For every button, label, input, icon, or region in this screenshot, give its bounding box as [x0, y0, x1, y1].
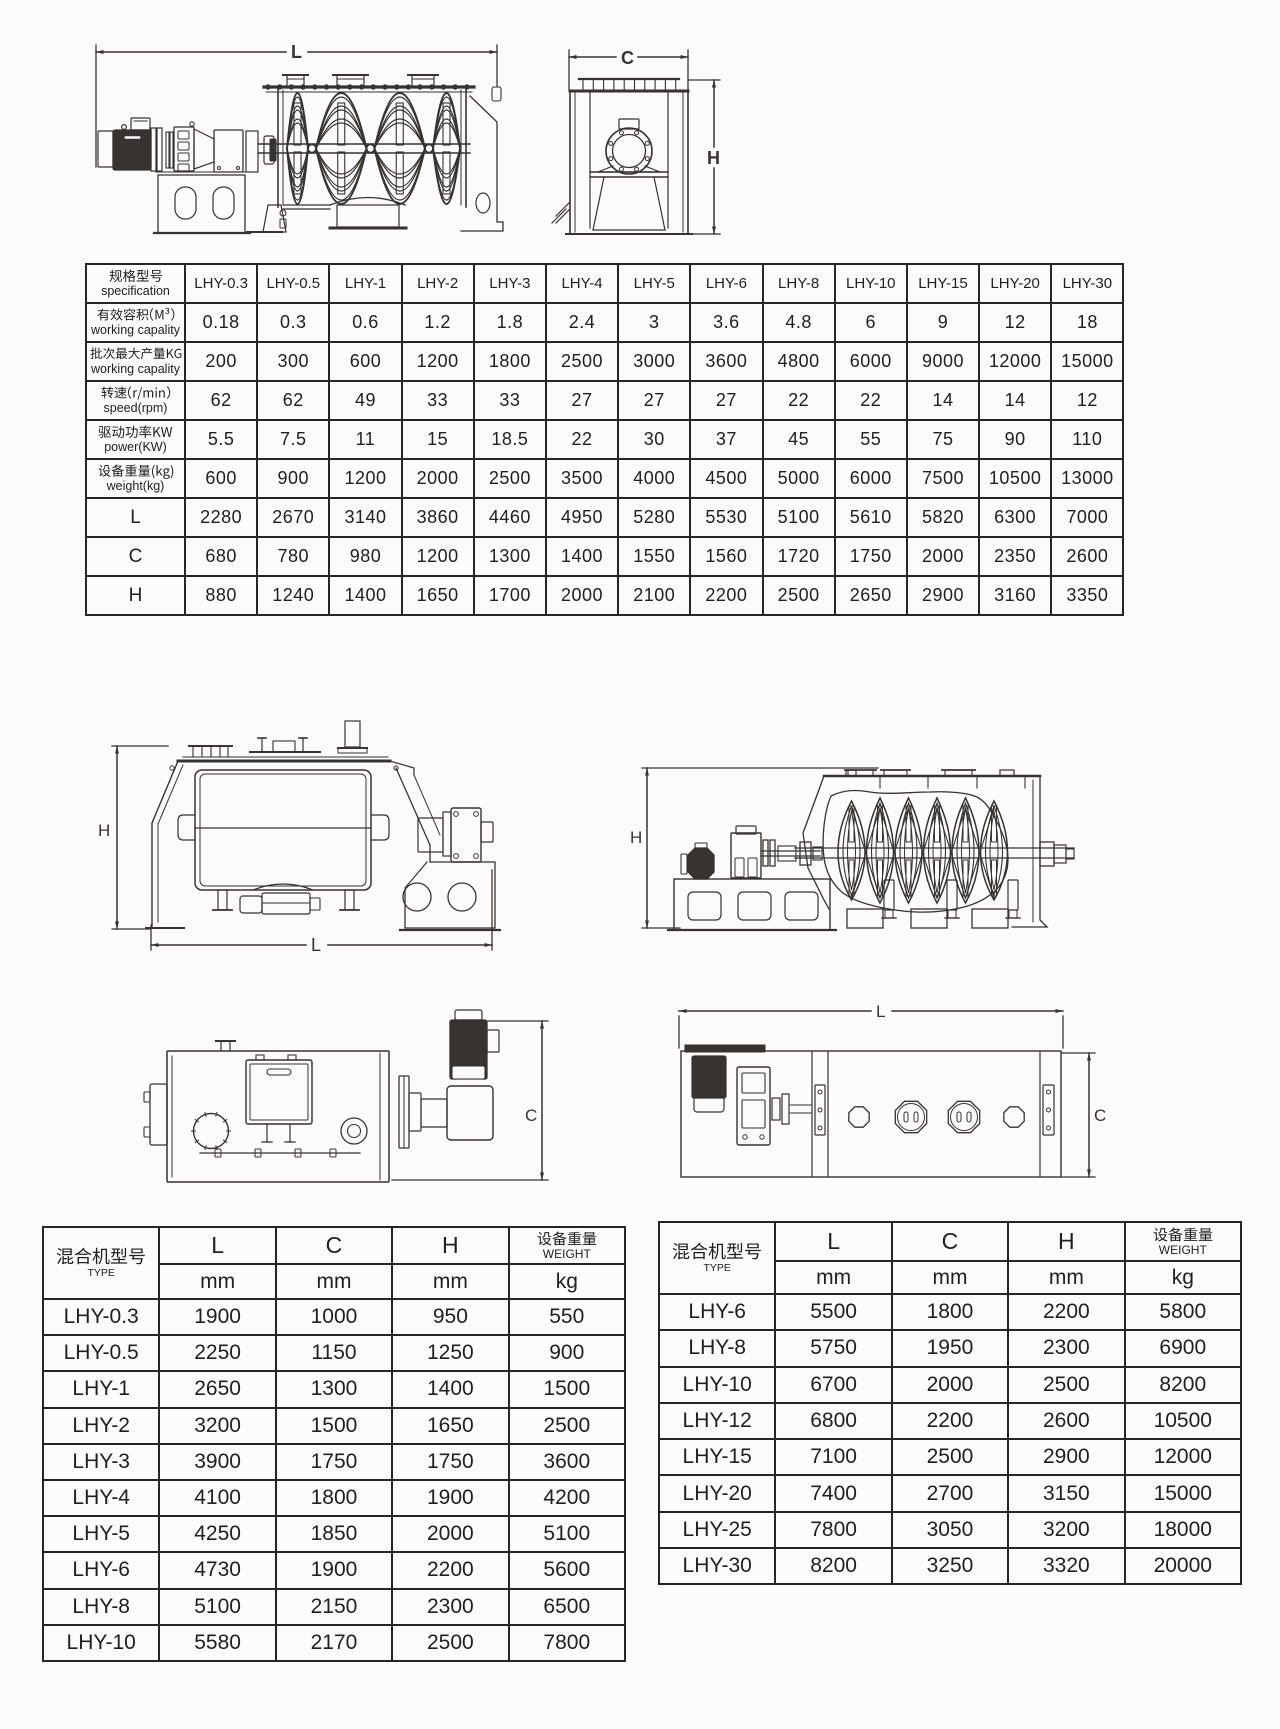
- svg-text:L: L: [291, 42, 302, 62]
- svg-text:C: C: [1094, 1106, 1106, 1125]
- svg-text:L: L: [876, 1002, 885, 1021]
- svg-text:C: C: [525, 1106, 537, 1125]
- svg-text:C: C: [621, 48, 634, 68]
- svg-text:H: H: [630, 828, 642, 847]
- svg-text:H: H: [98, 821, 110, 840]
- svg-text:L: L: [311, 935, 321, 955]
- svg-text:H: H: [707, 148, 720, 168]
